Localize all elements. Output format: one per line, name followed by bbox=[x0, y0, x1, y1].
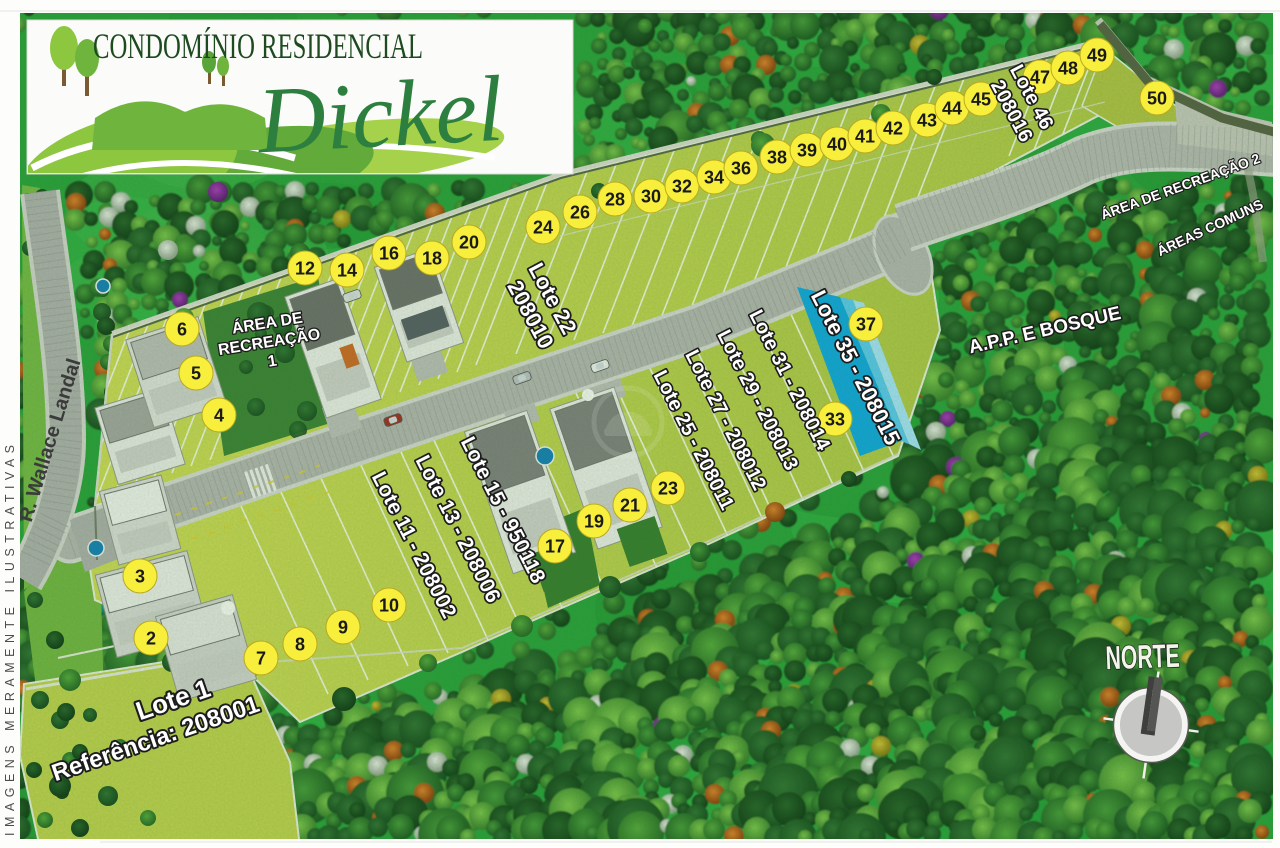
svg-text:21: 21 bbox=[620, 496, 640, 516]
svg-text:44: 44 bbox=[942, 99, 962, 119]
svg-text:23: 23 bbox=[658, 479, 678, 499]
svg-text:19: 19 bbox=[584, 512, 604, 532]
svg-text:18: 18 bbox=[422, 249, 442, 269]
svg-text:8: 8 bbox=[295, 635, 305, 655]
svg-text:50: 50 bbox=[1147, 89, 1167, 109]
svg-text:30: 30 bbox=[641, 187, 661, 207]
svg-text:49: 49 bbox=[1087, 46, 1107, 66]
svg-text:6: 6 bbox=[177, 320, 187, 340]
svg-text:34: 34 bbox=[704, 168, 724, 188]
svg-text:2: 2 bbox=[146, 629, 156, 649]
svg-text:37: 37 bbox=[856, 315, 876, 335]
svg-text:43: 43 bbox=[917, 111, 937, 131]
svg-text:28: 28 bbox=[605, 190, 625, 210]
svg-text:7: 7 bbox=[256, 649, 266, 669]
svg-text:NORTE: NORTE bbox=[1105, 637, 1180, 677]
svg-text:40: 40 bbox=[827, 135, 847, 155]
svg-text:IMAGENS MERAMENTE ILUSTRATIVAS: IMAGENS MERAMENTE ILUSTRATIVAS bbox=[3, 439, 17, 836]
svg-text:26: 26 bbox=[570, 203, 590, 223]
svg-text:39: 39 bbox=[797, 141, 817, 161]
svg-text:41: 41 bbox=[855, 127, 875, 147]
svg-text:33: 33 bbox=[825, 410, 845, 430]
svg-text:14: 14 bbox=[337, 261, 357, 281]
svg-text:24: 24 bbox=[533, 218, 553, 238]
svg-text:4: 4 bbox=[214, 406, 224, 426]
svg-text:42: 42 bbox=[883, 119, 903, 139]
svg-text:5: 5 bbox=[191, 364, 201, 384]
svg-text:32: 32 bbox=[672, 177, 692, 197]
svg-text:Dickel: Dickel bbox=[253, 57, 505, 174]
svg-text:17: 17 bbox=[545, 537, 565, 557]
svg-text:CONDOMÍNIO RESIDENCIAL: CONDOMÍNIO RESIDENCIAL bbox=[93, 26, 423, 66]
svg-text:38: 38 bbox=[767, 148, 787, 168]
svg-text:45: 45 bbox=[971, 90, 991, 110]
svg-text:16: 16 bbox=[379, 244, 399, 264]
svg-text:48: 48 bbox=[1058, 59, 1078, 79]
svg-text:36: 36 bbox=[731, 159, 751, 179]
svg-text:20: 20 bbox=[459, 233, 479, 253]
svg-text:9: 9 bbox=[338, 618, 348, 638]
svg-text:3: 3 bbox=[135, 567, 145, 587]
svg-text:12: 12 bbox=[295, 259, 315, 279]
svg-text:10: 10 bbox=[379, 596, 399, 616]
